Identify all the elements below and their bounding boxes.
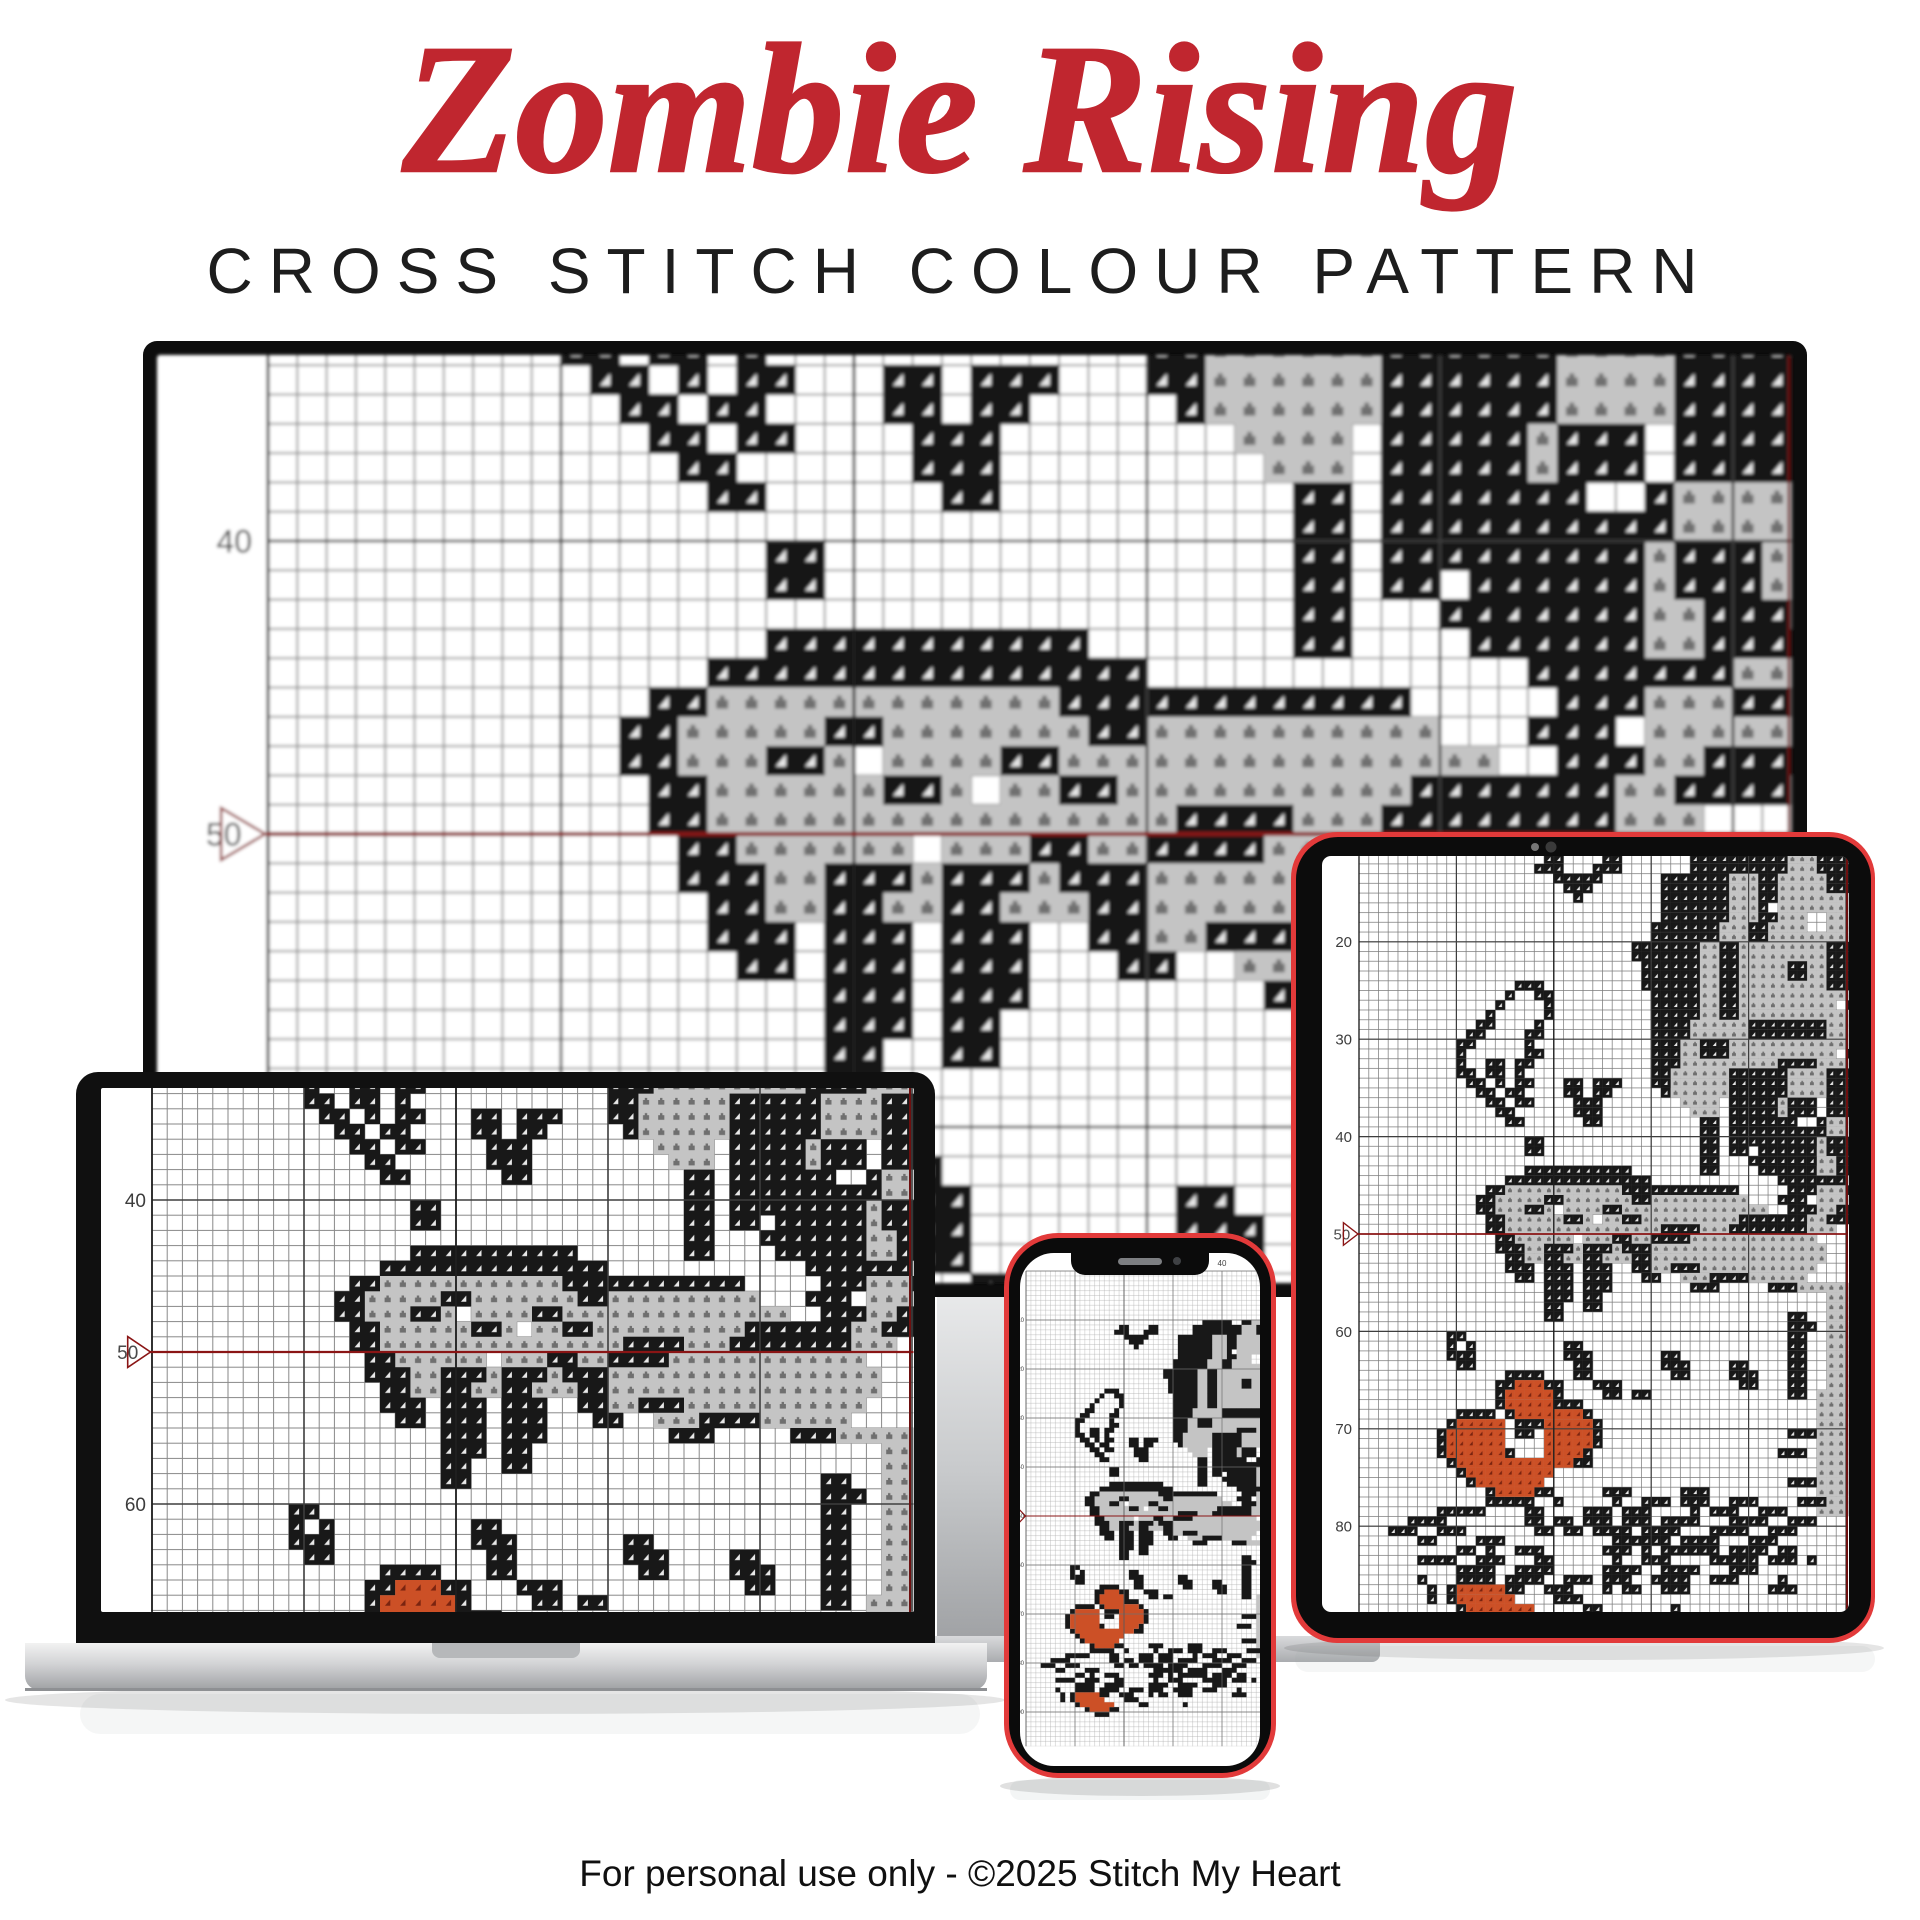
svg-text:40: 40: [1218, 1259, 1227, 1268]
svg-text:40: 40: [216, 524, 252, 560]
svg-text:40: 40: [1335, 1129, 1352, 1146]
svg-text:50: 50: [1334, 1226, 1351, 1243]
svg-text:20: 20: [1335, 934, 1352, 951]
svg-text:80: 80: [1335, 1519, 1352, 1536]
svg-text:CROSS STITCH COLOUR PATTERN: CROSS STITCH COLOUR PATTERN: [206, 235, 1713, 307]
svg-text:For personal use only - ©2025: For personal use only - ©2025 Stitch My …: [579, 1853, 1341, 1894]
svg-text:Zombie Rising: Zombie Rising: [401, 7, 1517, 212]
svg-text:50: 50: [206, 817, 242, 853]
svg-text:60: 60: [125, 1495, 146, 1516]
svg-text:30: 30: [1335, 1032, 1352, 1049]
svg-text:70: 70: [1335, 1421, 1352, 1438]
svg-text:40: 40: [125, 1191, 146, 1212]
svg-text:60: 60: [1335, 1324, 1352, 1341]
